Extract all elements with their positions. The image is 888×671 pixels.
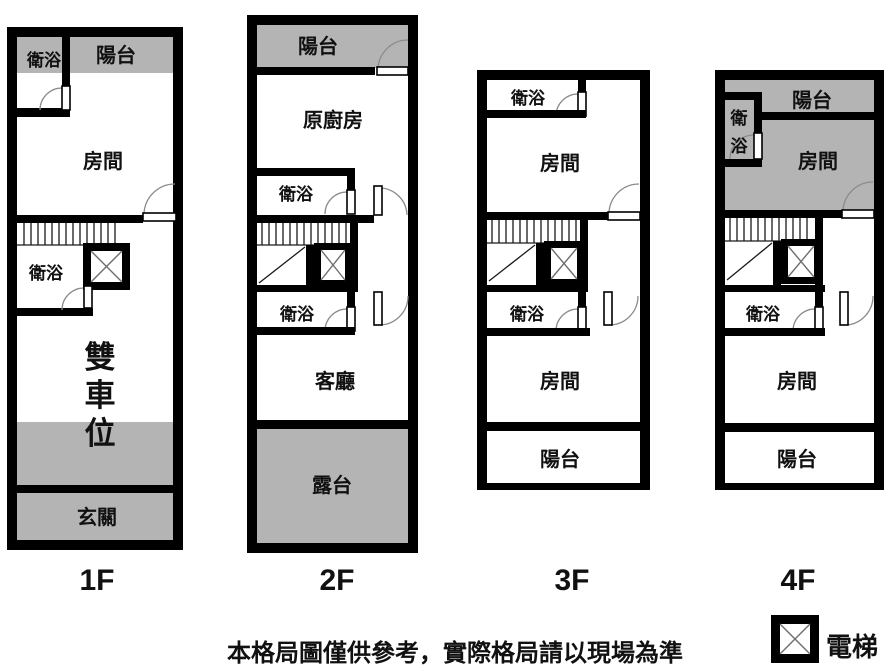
door-leaf-icon: [143, 213, 176, 221]
room-label-bath-top-1f: 衛浴: [26, 50, 62, 70]
disclaimer-text: 本格局圖僅供參考，實際格局請以現場為準: [227, 639, 683, 667]
elevator-icon: [544, 241, 584, 286]
floor-caption-4f: 4F: [780, 564, 815, 597]
legend-elevator-label: 電梯: [826, 632, 878, 662]
room-label-bath-mid-1f: 衛浴: [28, 263, 64, 283]
door-leaf-icon: [604, 292, 612, 325]
floorplan-page: 衛浴 陽台 房間 衛浴 雙 車 位 玄關: [0, 0, 888, 671]
room-label-balcony-1f: 陽台: [96, 43, 136, 67]
room-label-balcony-2f: 陽台: [298, 34, 338, 58]
door-leaf-icon: [377, 67, 408, 75]
door-leaf-icon: [84, 286, 92, 308]
door-leaf-icon: [815, 307, 823, 331]
room-label-room-upper-4f: 房間: [798, 149, 838, 173]
door-leaf-icon: [840, 292, 848, 325]
room-label-room-1f: 房間: [83, 149, 123, 173]
floor-caption-1f: 1F: [79, 564, 114, 597]
room-label-bath-upper-char1-4f: 衛: [730, 108, 748, 128]
room-label-bath-upper-char2-4f: 浴: [731, 136, 749, 156]
door-leaf-icon: [754, 133, 762, 159]
floor-plan-1f: 衛浴 陽台 房間 衛浴 雙 車 位 玄關: [7, 27, 183, 550]
room-label-balcony-lower-4f: 陽台: [777, 447, 817, 471]
elevator-legend-icon: [771, 615, 819, 663]
door-leaf-icon: [578, 307, 586, 331]
room-label-parking-char3: 位: [85, 416, 116, 451]
door-leaf-icon: [608, 212, 640, 220]
room-label-entry-1f: 玄關: [77, 505, 117, 529]
room-label-living-2f: 客廳: [314, 369, 355, 393]
floorplan-canvas: 衛浴 陽台 房間 衛浴 雙 車 位 玄關: [0, 0, 888, 671]
floor-caption-3f: 3F: [554, 564, 589, 597]
room-label-bath-lower-3f: 衛浴: [509, 304, 545, 324]
room-label-balcony-3f: 陽台: [540, 447, 580, 471]
room-label-balcony-upper-4f: 陽台: [792, 88, 832, 112]
floor-plan-2f: 陽台 原廚房 衛浴 衛浴 客廳 露台: [247, 15, 418, 553]
room-label-bath-upper-2f: 衛浴: [278, 184, 314, 204]
room-label-room-lower-3f: 房間: [540, 369, 580, 393]
room-label-kitchen-2f: 原廚房: [303, 108, 363, 132]
room-label-terrace-2f: 露台: [312, 473, 352, 497]
door-leaf-icon: [347, 190, 355, 214]
floor-plan-4f: 陽台 衛 浴 房間 衛浴 房間 陽台: [715, 70, 884, 490]
room-label-bath-lower-2f: 衛浴: [279, 304, 315, 324]
room-label-parking-char2: 車: [85, 378, 116, 413]
room-label-parking-char1: 雙: [85, 340, 116, 375]
legend-elevator: 電梯: [771, 615, 878, 663]
elevator-icon: [83, 243, 130, 290]
floor-plan-3f: 衛浴 房間 衛浴 房間 陽台: [477, 70, 650, 490]
room-label-bath-lower-4f: 衛浴: [745, 304, 781, 324]
elevator-icon: [314, 243, 352, 287]
door-leaf-icon: [374, 292, 382, 325]
room-label-room-lower-4f: 房間: [777, 369, 817, 393]
door-leaf-icon: [62, 86, 70, 110]
room-label-room-upper-3f: 房間: [540, 151, 580, 175]
room-label-bath-upper-3f: 衛浴: [510, 88, 546, 108]
door-leaf-icon: [374, 186, 382, 215]
floor-caption-2f: 2F: [319, 564, 354, 597]
door-leaf-icon: [842, 210, 874, 218]
